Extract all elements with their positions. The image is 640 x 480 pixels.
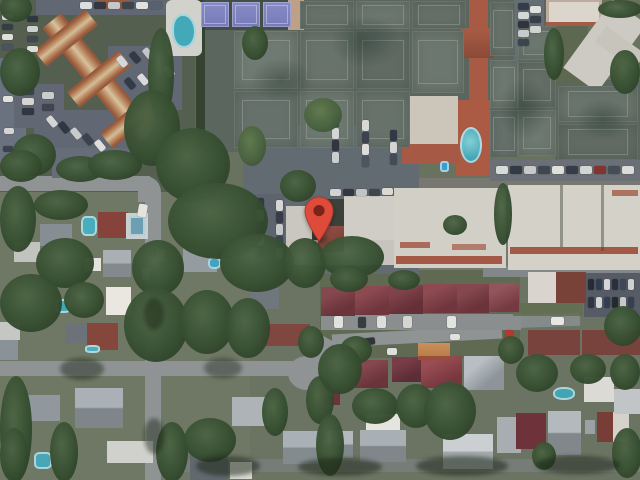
- parked-car: [382, 188, 393, 195]
- tree-canopy: [242, 26, 268, 60]
- parked-car: [530, 16, 541, 23]
- pool-west-81: [81, 216, 97, 236]
- pin-body: [305, 197, 333, 241]
- townhouse-driveway: [321, 314, 521, 330]
- tree-shadow: [204, 358, 242, 378]
- gray-house-103: [103, 250, 131, 277]
- road-south: [0, 361, 310, 376]
- townhouse-roof-4: [423, 284, 457, 313]
- parked-car: [551, 317, 564, 325]
- townhouse-roof-6: [489, 283, 519, 312]
- parked-car: [588, 297, 594, 308]
- parked-car: [362, 132, 369, 143]
- parked-car: [369, 189, 380, 196]
- tree-canopy: [612, 428, 640, 478]
- small-shed: [585, 420, 595, 434]
- tree-canopy: [424, 382, 476, 440]
- parked-car: [594, 166, 606, 174]
- parked-car: [42, 92, 54, 99]
- parked-car: [343, 189, 354, 196]
- pin-dot: [313, 205, 324, 216]
- blue-tennis-court: [201, 2, 229, 27]
- tree-canopy: [388, 270, 420, 290]
- parked-car: [604, 297, 610, 308]
- redbrown-building-1: [528, 330, 580, 355]
- parked-car: [628, 279, 634, 290]
- parked-car: [518, 3, 529, 10]
- parked-car: [596, 297, 602, 308]
- parked-car: [3, 96, 13, 102]
- tree-canopy: [220, 234, 294, 292]
- tree-canopy: [352, 388, 398, 424]
- tree-canopy: [88, 150, 142, 180]
- parked-car: [122, 2, 134, 9]
- tree-shadow: [144, 418, 164, 454]
- parked-car: [518, 21, 529, 28]
- parked-car: [377, 316, 386, 328]
- tree-canopy: [238, 126, 266, 166]
- apartment-block-east: [508, 185, 640, 270]
- parked-car: [27, 16, 38, 22]
- gable-house-south: [360, 430, 406, 462]
- parked-car: [332, 152, 339, 163]
- block-east-trim-2: [612, 190, 638, 196]
- tree-canopy: [604, 306, 640, 346]
- parked-car: [42, 104, 54, 111]
- parked-car: [450, 334, 460, 340]
- court-wear-patch: [250, 58, 314, 102]
- parked-car: [332, 128, 339, 139]
- parked-car: [136, 2, 148, 9]
- tree-shadow: [144, 298, 164, 330]
- parked-car: [612, 279, 618, 290]
- court-wear-patch: [576, 98, 630, 140]
- parked-car: [80, 2, 92, 9]
- tree-canopy: [516, 354, 558, 392]
- parked-car: [27, 36, 38, 42]
- orange-building-trim: [418, 356, 450, 360]
- parked-car: [518, 12, 529, 19]
- small-pool-85: [85, 345, 100, 353]
- parked-car: [620, 279, 626, 290]
- tree-canopy: [544, 28, 564, 80]
- parked-car: [588, 279, 594, 290]
- red-pool-house: [98, 212, 128, 238]
- clubhouse-roof: [402, 96, 458, 146]
- block-west-trim-2: [400, 242, 430, 248]
- pin-icon: [304, 196, 334, 242]
- dark-house-65: [65, 323, 87, 343]
- tree-canopy: [570, 354, 606, 384]
- clubhouse-south-wing: [402, 144, 460, 164]
- court-wear-patch: [330, 16, 402, 68]
- parked-car: [447, 316, 456, 328]
- parked-car: [276, 224, 283, 235]
- pool-east: [553, 387, 575, 400]
- gray-pyramid-house: [464, 356, 504, 390]
- tennis-court: [412, 31, 464, 93]
- tree-shadow: [536, 456, 620, 474]
- parked-car: [524, 166, 536, 174]
- parked-car: [604, 279, 610, 290]
- tree-canopy: [50, 422, 78, 480]
- parked-car: [150, 2, 162, 9]
- block-east-trim: [510, 247, 638, 254]
- parked-car: [356, 189, 367, 196]
- parked-car: [22, 108, 34, 115]
- parked-car: [390, 142, 397, 153]
- parked-car: [622, 166, 634, 174]
- parked-car: [552, 166, 564, 174]
- parked-car: [580, 166, 592, 174]
- parked-car: [608, 166, 620, 174]
- tree-canopy: [298, 326, 324, 358]
- parked-car: [2, 24, 13, 30]
- parked-car: [362, 120, 369, 131]
- tree-canopy: [34, 190, 88, 220]
- tree-canopy: [330, 266, 368, 292]
- pink-building-roof: [549, 2, 599, 22]
- tree-canopy: [610, 50, 640, 94]
- parked-car: [538, 166, 550, 174]
- parked-car: [390, 154, 397, 165]
- small-blue-pool: [440, 161, 449, 172]
- tree-canopy: [0, 186, 36, 252]
- tree-canopy: [64, 282, 104, 318]
- parked-car: [108, 2, 120, 9]
- blue-tennis-court: [263, 2, 291, 27]
- parked-car: [530, 6, 541, 13]
- parked-car: [390, 130, 397, 141]
- tree-canopy: [284, 238, 326, 288]
- tree-shadow: [298, 458, 382, 476]
- gray-house-west-edge: [0, 340, 18, 360]
- screened-pool-129: [129, 216, 145, 236]
- block-west-trim-3: [452, 244, 486, 250]
- redwhite-house-west: [597, 412, 613, 442]
- parked-car: [22, 98, 34, 105]
- gray-house-28: [28, 395, 60, 421]
- tree-shadow: [196, 456, 260, 476]
- townhouse-roof-2: [355, 286, 389, 315]
- block-west-trim: [396, 256, 502, 264]
- tree-canopy: [0, 428, 28, 480]
- blue-tennis-court: [232, 2, 260, 27]
- parked-car: [403, 316, 412, 328]
- block-divider-1: [560, 185, 563, 247]
- location-marker-pin[interactable]: [304, 196, 334, 242]
- tree-canopy: [0, 150, 42, 182]
- tree-canopy: [0, 274, 62, 332]
- parked-car: [358, 317, 366, 328]
- parked-car: [387, 348, 397, 355]
- big-gable-house-75: [75, 388, 123, 428]
- parked-car: [332, 140, 339, 151]
- parked-car: [518, 39, 529, 46]
- block-divider-2: [601, 185, 604, 251]
- townhouse-roof-5: [457, 284, 489, 313]
- tennis-court: [490, 2, 516, 56]
- tree-canopy: [610, 354, 640, 390]
- lawn-strip: [513, 303, 583, 316]
- tennis-court: [412, 1, 466, 29]
- tree-canopy: [0, 48, 40, 96]
- clubhouse2-west: [528, 272, 556, 303]
- court-wear-patch: [498, 78, 550, 140]
- tree-canopy: [443, 215, 467, 235]
- map-canvas[interactable]: [0, 0, 640, 480]
- parked-car: [518, 30, 529, 37]
- parked-car: [596, 279, 602, 290]
- tree-canopy: [494, 183, 512, 245]
- parked-car: [94, 2, 106, 9]
- parked-car: [510, 166, 522, 174]
- tree-shadow: [60, 358, 104, 380]
- tree-canopy: [598, 0, 640, 18]
- parked-car: [330, 189, 341, 196]
- tree-canopy: [226, 298, 270, 358]
- clubhouse2-east: [556, 272, 586, 303]
- house-right-edge: [614, 389, 640, 414]
- parked-car: [276, 200, 283, 211]
- parked-car: [334, 316, 343, 328]
- parked-car: [530, 26, 541, 33]
- townhouse2-roof-b: [392, 357, 422, 382]
- parked-car: [276, 212, 283, 223]
- oval-pool: [460, 127, 482, 163]
- parked-car: [566, 166, 578, 174]
- parked-car: [496, 166, 508, 174]
- parked-car: [2, 34, 13, 40]
- tree-canopy: [304, 98, 342, 132]
- parked-car: [362, 144, 369, 155]
- kidney-pool: [172, 14, 196, 48]
- parked-car: [4, 128, 14, 134]
- tree-canopy: [318, 344, 362, 394]
- tree-shadow: [416, 456, 508, 476]
- tree-canopy: [262, 388, 288, 436]
- parked-car: [362, 156, 369, 167]
- parked-car: [27, 26, 38, 32]
